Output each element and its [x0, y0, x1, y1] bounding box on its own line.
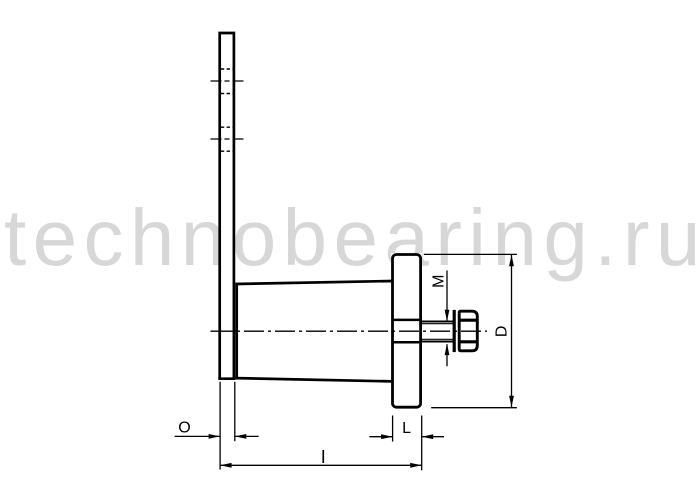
svg-text:M: M [430, 275, 447, 288]
svg-text:D: D [494, 326, 511, 338]
svg-text:O: O [178, 420, 190, 437]
svg-text:technobearing.ru: technobearing.ru [4, 193, 700, 282]
svg-text:I: I [321, 447, 326, 467]
svg-text:L: L [402, 420, 411, 437]
